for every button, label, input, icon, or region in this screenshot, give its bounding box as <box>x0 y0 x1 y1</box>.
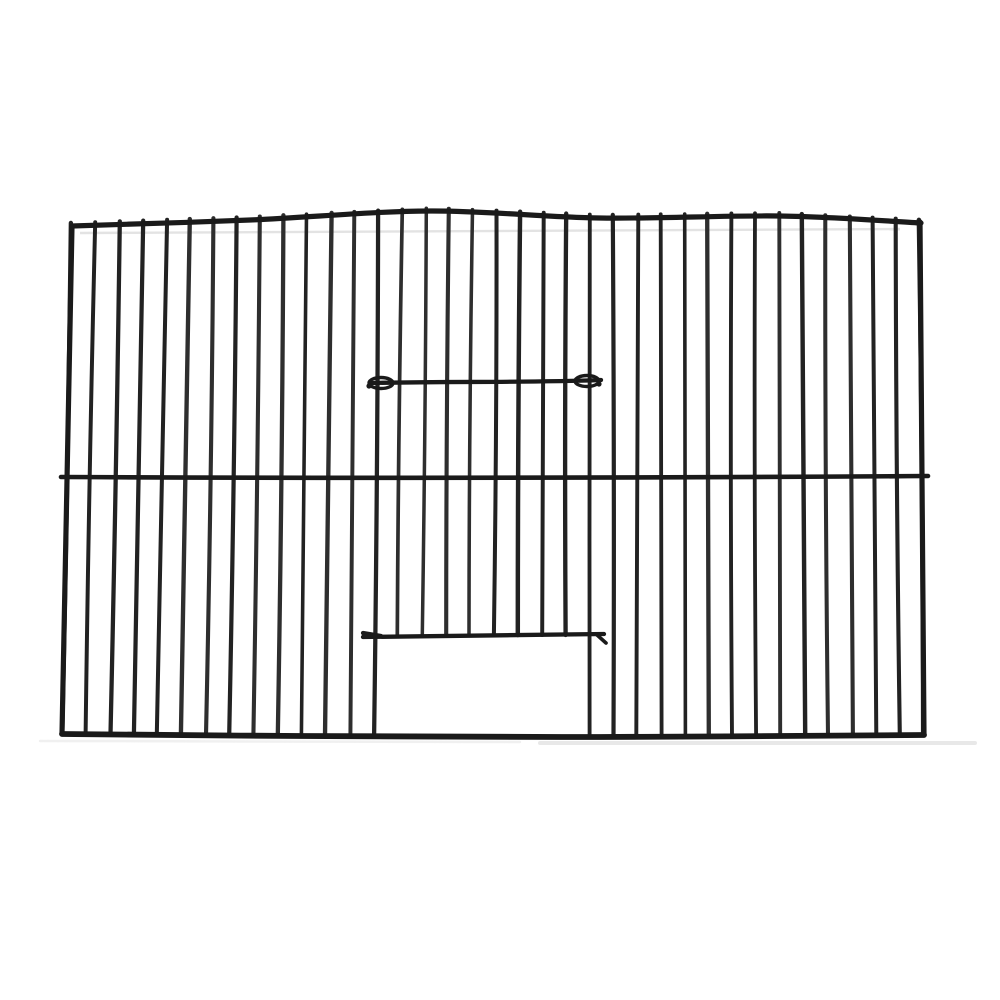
cage-front-panel <box>0 0 1000 1000</box>
door-left-hook-tip <box>366 383 371 388</box>
bottom-frame-wire <box>62 734 924 737</box>
door-top-bar <box>372 380 601 383</box>
door-bottom-bar-left-tick <box>363 633 381 636</box>
vertical-bar <box>565 214 566 635</box>
door-right-hook-tip <box>596 381 601 386</box>
door-opening <box>383 640 583 730</box>
middle-rail-wire <box>61 476 928 478</box>
vertical-bar <box>518 212 520 635</box>
door-bottom-bar <box>363 634 604 637</box>
vertical-bar <box>779 213 780 736</box>
vertical-bar <box>542 213 544 635</box>
product-photo <box>0 0 1000 1000</box>
ground-shadow <box>40 741 520 742</box>
vertical-bar <box>755 213 756 736</box>
